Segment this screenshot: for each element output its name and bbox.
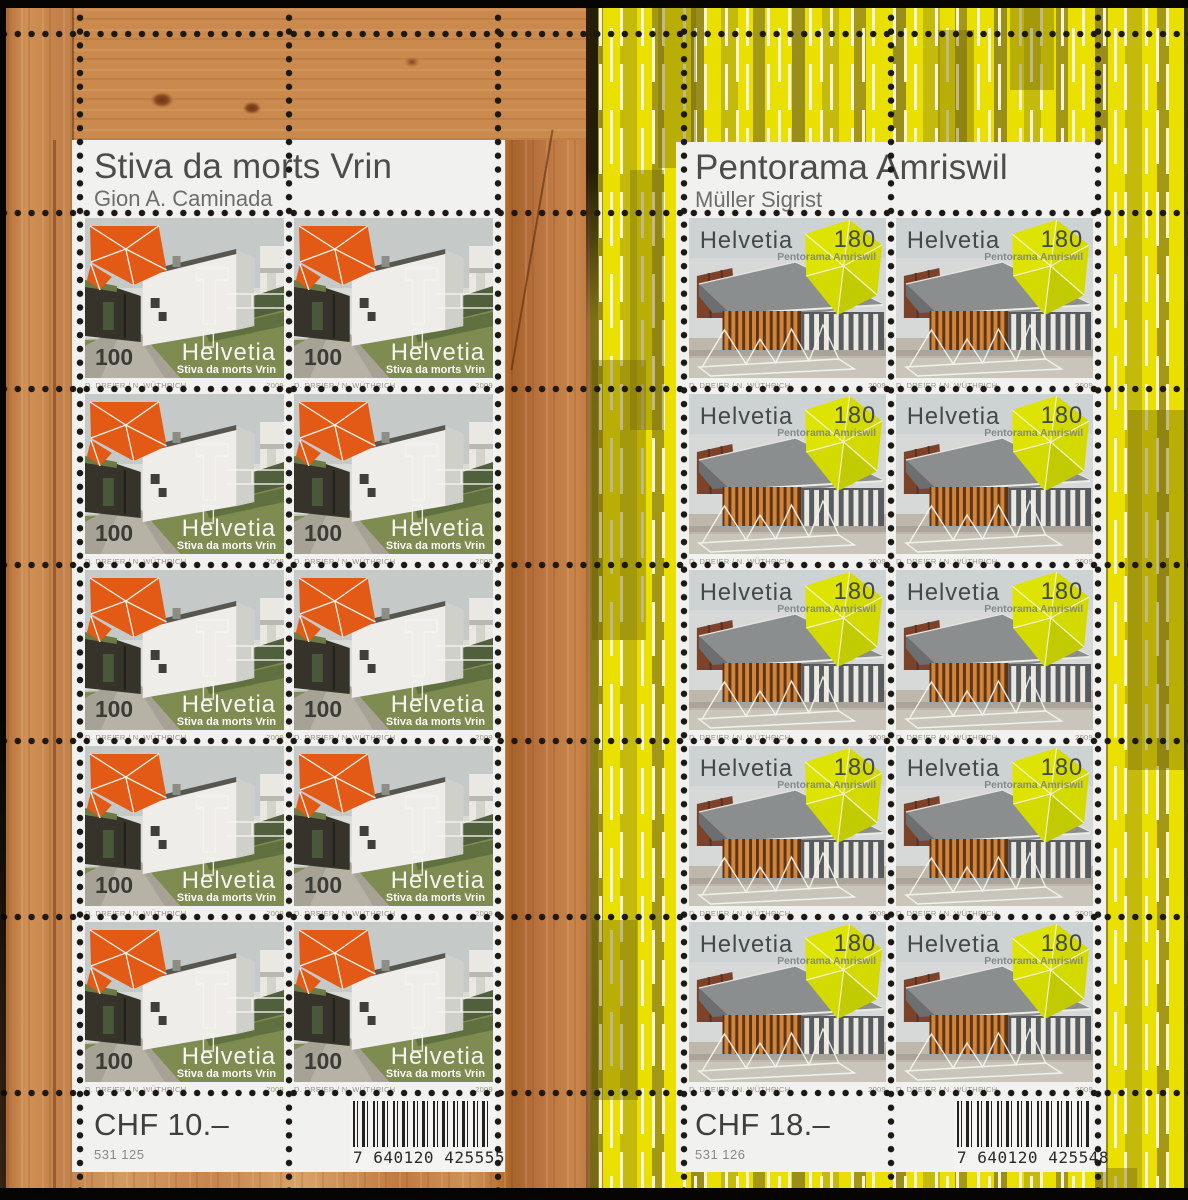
stamp-caption: Pentorama Amriswil: [984, 780, 1083, 791]
scan-edge-right: [1184, 0, 1188, 1200]
stamp-caption: Stiva da morts Vrin: [177, 1068, 276, 1080]
stamp-artwork: 100 Helvetia Stiva da morts Vrin: [85, 218, 284, 378]
perforation-column: [680, 0, 688, 1200]
perforation-column: [1094, 0, 1102, 1200]
stamp-artwork: 100 Helvetia Stiva da morts Vrin: [294, 570, 493, 730]
stamp-country: Helvetia: [391, 867, 485, 894]
stamp-country: Helvetia: [700, 403, 793, 430]
stamp-caption: Stiva da morts Vrin: [386, 1068, 485, 1080]
stamp-stiva-da-morts-vrin: 100 Helvetia Stiva da morts Vrin D. DREI…: [80, 213, 289, 389]
perforation-row: [0, 561, 1188, 569]
stamp-caption: Stiva da morts Vrin: [386, 716, 485, 728]
stamp-country: Helvetia: [907, 227, 1000, 254]
stamp-artwork: Helvetia 180 Pentorama Amriswil: [689, 746, 886, 906]
stamp-value: 180: [1041, 754, 1083, 781]
perforation-row: [0, 209, 1188, 217]
stamp-value: 100: [95, 872, 133, 898]
order-number: 531 126: [695, 1147, 746, 1162]
stamp-caption: Pentorama Amriswil: [777, 428, 876, 439]
barcode-digits: 7 640120 425555: [353, 1148, 493, 1167]
perforation-row: [0, 1089, 1188, 1097]
stamp-stiva-da-morts-vrin: 100 Helvetia Stiva da morts Vrin D. DREI…: [289, 565, 498, 741]
stamp-country: Helvetia: [700, 579, 793, 606]
sheet-title: Pentorama Amriswil: [695, 149, 1106, 187]
stamp-value: 100: [95, 344, 133, 370]
stamp-pentorama-amriswil: Helvetia 180 Pentorama Amriswil D. DREIE…: [891, 565, 1098, 741]
wood-plank-joint: [53, 140, 56, 1200]
stamp-country: Helvetia: [907, 755, 1000, 782]
stamp-pentorama-amriswil: Helvetia 180 Pentorama Amriswil D. DREIE…: [891, 389, 1098, 565]
stamp-artwork: Helvetia 180 Pentorama Amriswil: [689, 394, 886, 554]
stamp-value: 100: [95, 520, 133, 546]
stamp-sheets-scan: Stiva da morts Vrin Gion A. Caminada: [0, 0, 1188, 1200]
stamp-artwork: 100 Helvetia Stiva da morts Vrin: [85, 394, 284, 554]
stamp-country: Helvetia: [907, 403, 1000, 430]
stamp-country: Helvetia: [182, 691, 276, 718]
stamp-value: 100: [304, 696, 342, 722]
stamp-value: 100: [304, 344, 342, 370]
stamp-value: 180: [834, 226, 876, 253]
stamp-stiva-da-morts-vrin: 100 Helvetia Stiva da morts Vrin D. DREI…: [289, 741, 498, 917]
stamp-country: Helvetia: [907, 931, 1000, 958]
stamp-caption: Stiva da morts Vrin: [177, 892, 276, 904]
stamp-caption: Pentorama Amriswil: [984, 604, 1083, 615]
stamp-pentorama-amriswil: Helvetia 180 Pentorama Amriswil D. DREIE…: [891, 917, 1098, 1093]
stamp-pentorama-amriswil: Helvetia 180 Pentorama Amriswil D. DREIE…: [891, 213, 1098, 389]
stamp-country: Helvetia: [182, 1043, 276, 1070]
stamp-caption: Pentorama Amriswil: [984, 252, 1083, 263]
perforation-row: [0, 385, 1188, 393]
stamp-country: Helvetia: [907, 579, 1000, 606]
stamp-artwork: 100 Helvetia Stiva da morts Vrin: [294, 218, 493, 378]
stamp-artwork: Helvetia 180 Pentorama Amriswil: [896, 394, 1093, 554]
stamp-caption: Stiva da morts Vrin: [177, 716, 276, 728]
stamp-value: 180: [1041, 578, 1083, 605]
stamp-artwork: 100 Helvetia Stiva da morts Vrin: [294, 746, 493, 906]
stamp-stiva-da-morts-vrin: 100 Helvetia Stiva da morts Vrin D. DREI…: [289, 917, 498, 1093]
stamp-value: 180: [1041, 226, 1083, 253]
price-label: CHF 10.–: [94, 1107, 229, 1143]
stamp-value: 100: [95, 1048, 133, 1074]
perforation-column: [887, 0, 895, 1200]
stamp-caption: Pentorama Amriswil: [777, 780, 876, 791]
stamp-artwork: 100 Helvetia Stiva da morts Vrin: [85, 746, 284, 906]
stamp-country: Helvetia: [182, 339, 276, 366]
stamp-country: Helvetia: [700, 227, 793, 254]
stamp-artwork: Helvetia 180 Pentorama Amriswil: [896, 570, 1093, 730]
stamp-value: 100: [304, 872, 342, 898]
perforation-row: [0, 30, 1188, 38]
stamp-caption: Stiva da morts Vrin: [177, 364, 276, 376]
stamp-caption: Stiva da morts Vrin: [386, 892, 485, 904]
scan-edge-left: [0, 0, 6, 1200]
stamp-value: 180: [834, 402, 876, 429]
scan-edge-top: [0, 0, 1188, 8]
stamp-artwork: 100 Helvetia Stiva da morts Vrin: [85, 922, 284, 1082]
stamp-pentorama-amriswil: Helvetia 180 Pentorama Amriswil D. DREIE…: [684, 917, 891, 1093]
barcode-bars: [353, 1101, 493, 1147]
scan-edge-bottom: [0, 1188, 1188, 1200]
stamp-artwork: Helvetia 180 Pentorama Amriswil: [896, 922, 1093, 1082]
stamp-value: 100: [95, 696, 133, 722]
perforation-column: [494, 0, 502, 1200]
sheet-title: Stiva da morts Vrin: [94, 148, 505, 186]
stamp-value: 180: [1041, 402, 1083, 429]
stamp-country: Helvetia: [391, 1043, 485, 1070]
price-label: CHF 18.–: [695, 1107, 830, 1143]
stamp-caption: Pentorama Amriswil: [984, 956, 1083, 967]
stamp-stiva-da-morts-vrin: 100 Helvetia Stiva da morts Vrin D. DREI…: [80, 565, 289, 741]
stamp-value: 180: [834, 754, 876, 781]
stamp-country: Helvetia: [182, 867, 276, 894]
stamp-value: 100: [304, 520, 342, 546]
stamp-artwork: 100 Helvetia Stiva da morts Vrin: [294, 394, 493, 554]
stamp-caption: Pentorama Amriswil: [777, 604, 876, 615]
barcode: 7 640120 425555: [350, 1099, 496, 1169]
stamp-pentorama-amriswil: Helvetia 180 Pentorama Amriswil D. DREIE…: [684, 741, 891, 917]
stamp-value: 180: [834, 578, 876, 605]
stamp-pentorama-amriswil: Helvetia 180 Pentorama Amriswil D. DREIE…: [684, 565, 891, 741]
perforation-column: [285, 0, 293, 1200]
stamp-artwork: Helvetia 180 Pentorama Amriswil: [689, 922, 886, 1082]
stamp-country: Helvetia: [391, 339, 485, 366]
stamp-artwork: 100 Helvetia Stiva da morts Vrin: [85, 570, 284, 730]
barcode: 7 640120 425548: [954, 1099, 1092, 1169]
stamp-country: Helvetia: [700, 931, 793, 958]
stamp-stiva-da-morts-vrin: 100 Helvetia Stiva da morts Vrin D. DREI…: [80, 741, 289, 917]
stamp-pentorama-amriswil: Helvetia 180 Pentorama Amriswil D. DREIE…: [684, 389, 891, 565]
perforation-row: [0, 737, 1188, 745]
stamp-artwork: 100 Helvetia Stiva da morts Vrin: [294, 922, 493, 1082]
stamp-value: 180: [1041, 930, 1083, 957]
stamp-artwork: Helvetia 180 Pentorama Amriswil: [896, 746, 1093, 906]
perforation-column: [76, 0, 84, 1200]
stamp-caption: Pentorama Amriswil: [777, 956, 876, 967]
stamp-stiva-da-morts-vrin: 100 Helvetia Stiva da morts Vrin D. DREI…: [289, 213, 498, 389]
stamp-pentorama-amriswil: Helvetia 180 Pentorama Amriswil D. DREIE…: [891, 741, 1098, 917]
stamp-value: 100: [304, 1048, 342, 1074]
stamp-caption: Pentorama Amriswil: [984, 428, 1083, 439]
architect-name: Gion A. Caminada: [94, 187, 505, 211]
barcode-digits: 7 640120 425548: [957, 1148, 1089, 1167]
stamp-country: Helvetia: [182, 515, 276, 542]
stamp-stiva-da-morts-vrin: 100 Helvetia Stiva da morts Vrin D. DREI…: [289, 389, 498, 565]
stamp-country: Helvetia: [700, 755, 793, 782]
perforation-row: [0, 913, 1188, 921]
order-number: 531 125: [94, 1147, 145, 1162]
barcode-bars: [957, 1101, 1089, 1147]
stamp-stiva-da-morts-vrin: 100 Helvetia Stiva da morts Vrin D. DREI…: [80, 917, 289, 1093]
stamp-caption: Stiva da morts Vrin: [386, 364, 485, 376]
sheet-separation-shadow: [586, 0, 598, 1200]
stamp-country: Helvetia: [391, 691, 485, 718]
stamp-country: Helvetia: [391, 515, 485, 542]
stamp-artwork: Helvetia 180 Pentorama Amriswil: [896, 218, 1093, 378]
stamp-artwork: Helvetia 180 Pentorama Amriswil: [689, 218, 886, 378]
stamp-caption: Pentorama Amriswil: [777, 252, 876, 263]
stamp-value: 180: [834, 930, 876, 957]
stamp-artwork: Helvetia 180 Pentorama Amriswil: [689, 570, 886, 730]
stamp-pentorama-amriswil: Helvetia 180 Pentorama Amriswil D. DREIE…: [684, 213, 891, 389]
stamp-caption: Stiva da morts Vrin: [177, 540, 276, 552]
stamp-caption: Stiva da morts Vrin: [386, 540, 485, 552]
wood-top-plank: [72, 0, 592, 140]
stamp-stiva-da-morts-vrin: 100 Helvetia Stiva da morts Vrin D. DREI…: [80, 389, 289, 565]
